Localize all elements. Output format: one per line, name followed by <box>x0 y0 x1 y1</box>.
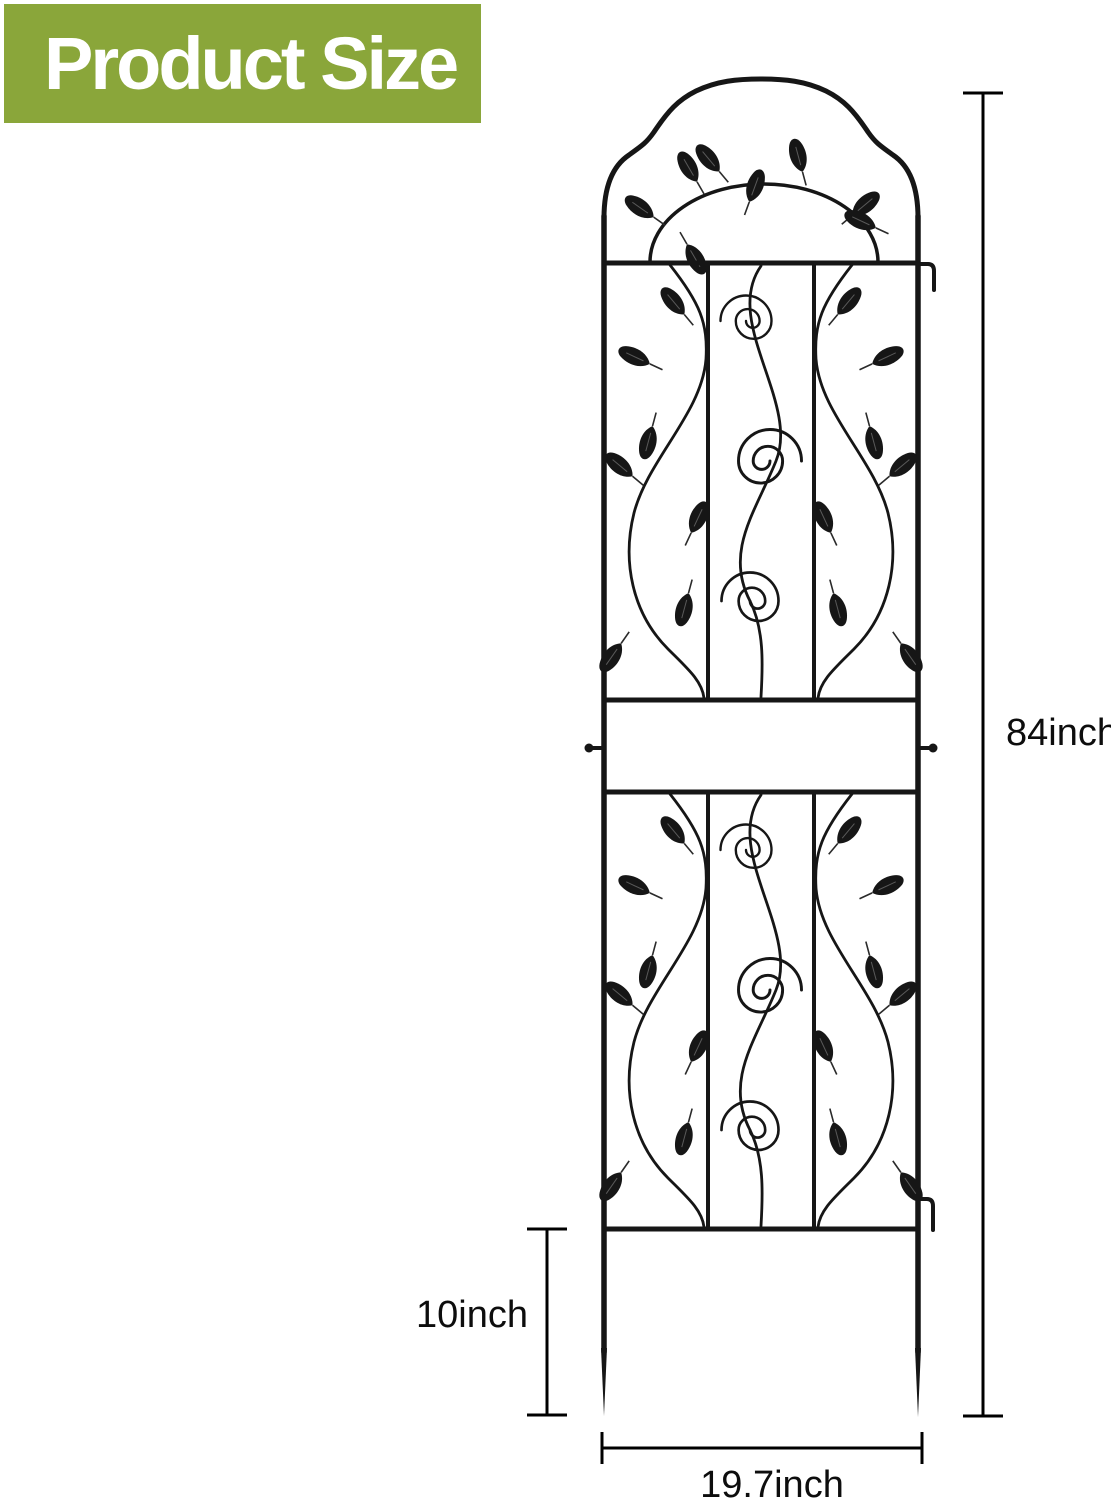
lower-panel <box>595 792 927 1229</box>
arch-leaves <box>621 137 892 278</box>
top-right-hook <box>920 264 934 290</box>
stake-dimension-label: 10inch <box>416 1294 528 1336</box>
right-clip <box>918 744 938 753</box>
height-dimension-label: 84inch <box>1006 712 1111 754</box>
bottom-right-hook <box>920 1199 933 1230</box>
width-dimension-line <box>602 1432 922 1464</box>
width-dimension-label: 19.7inch <box>700 1464 844 1500</box>
trellis-illustration <box>585 79 938 1417</box>
trellis-size-illustration: 84inch 10inch 19.7inch <box>0 0 1111 1500</box>
right-stake-tip <box>915 1348 921 1417</box>
upper-panel <box>595 263 927 700</box>
stake-dimension-line <box>527 1229 567 1415</box>
product-size-diagram: Product Size <box>0 0 1111 1500</box>
left-clip <box>585 744 605 753</box>
height-dimension-line <box>963 93 1003 1416</box>
left-stake-tip <box>601 1348 607 1416</box>
